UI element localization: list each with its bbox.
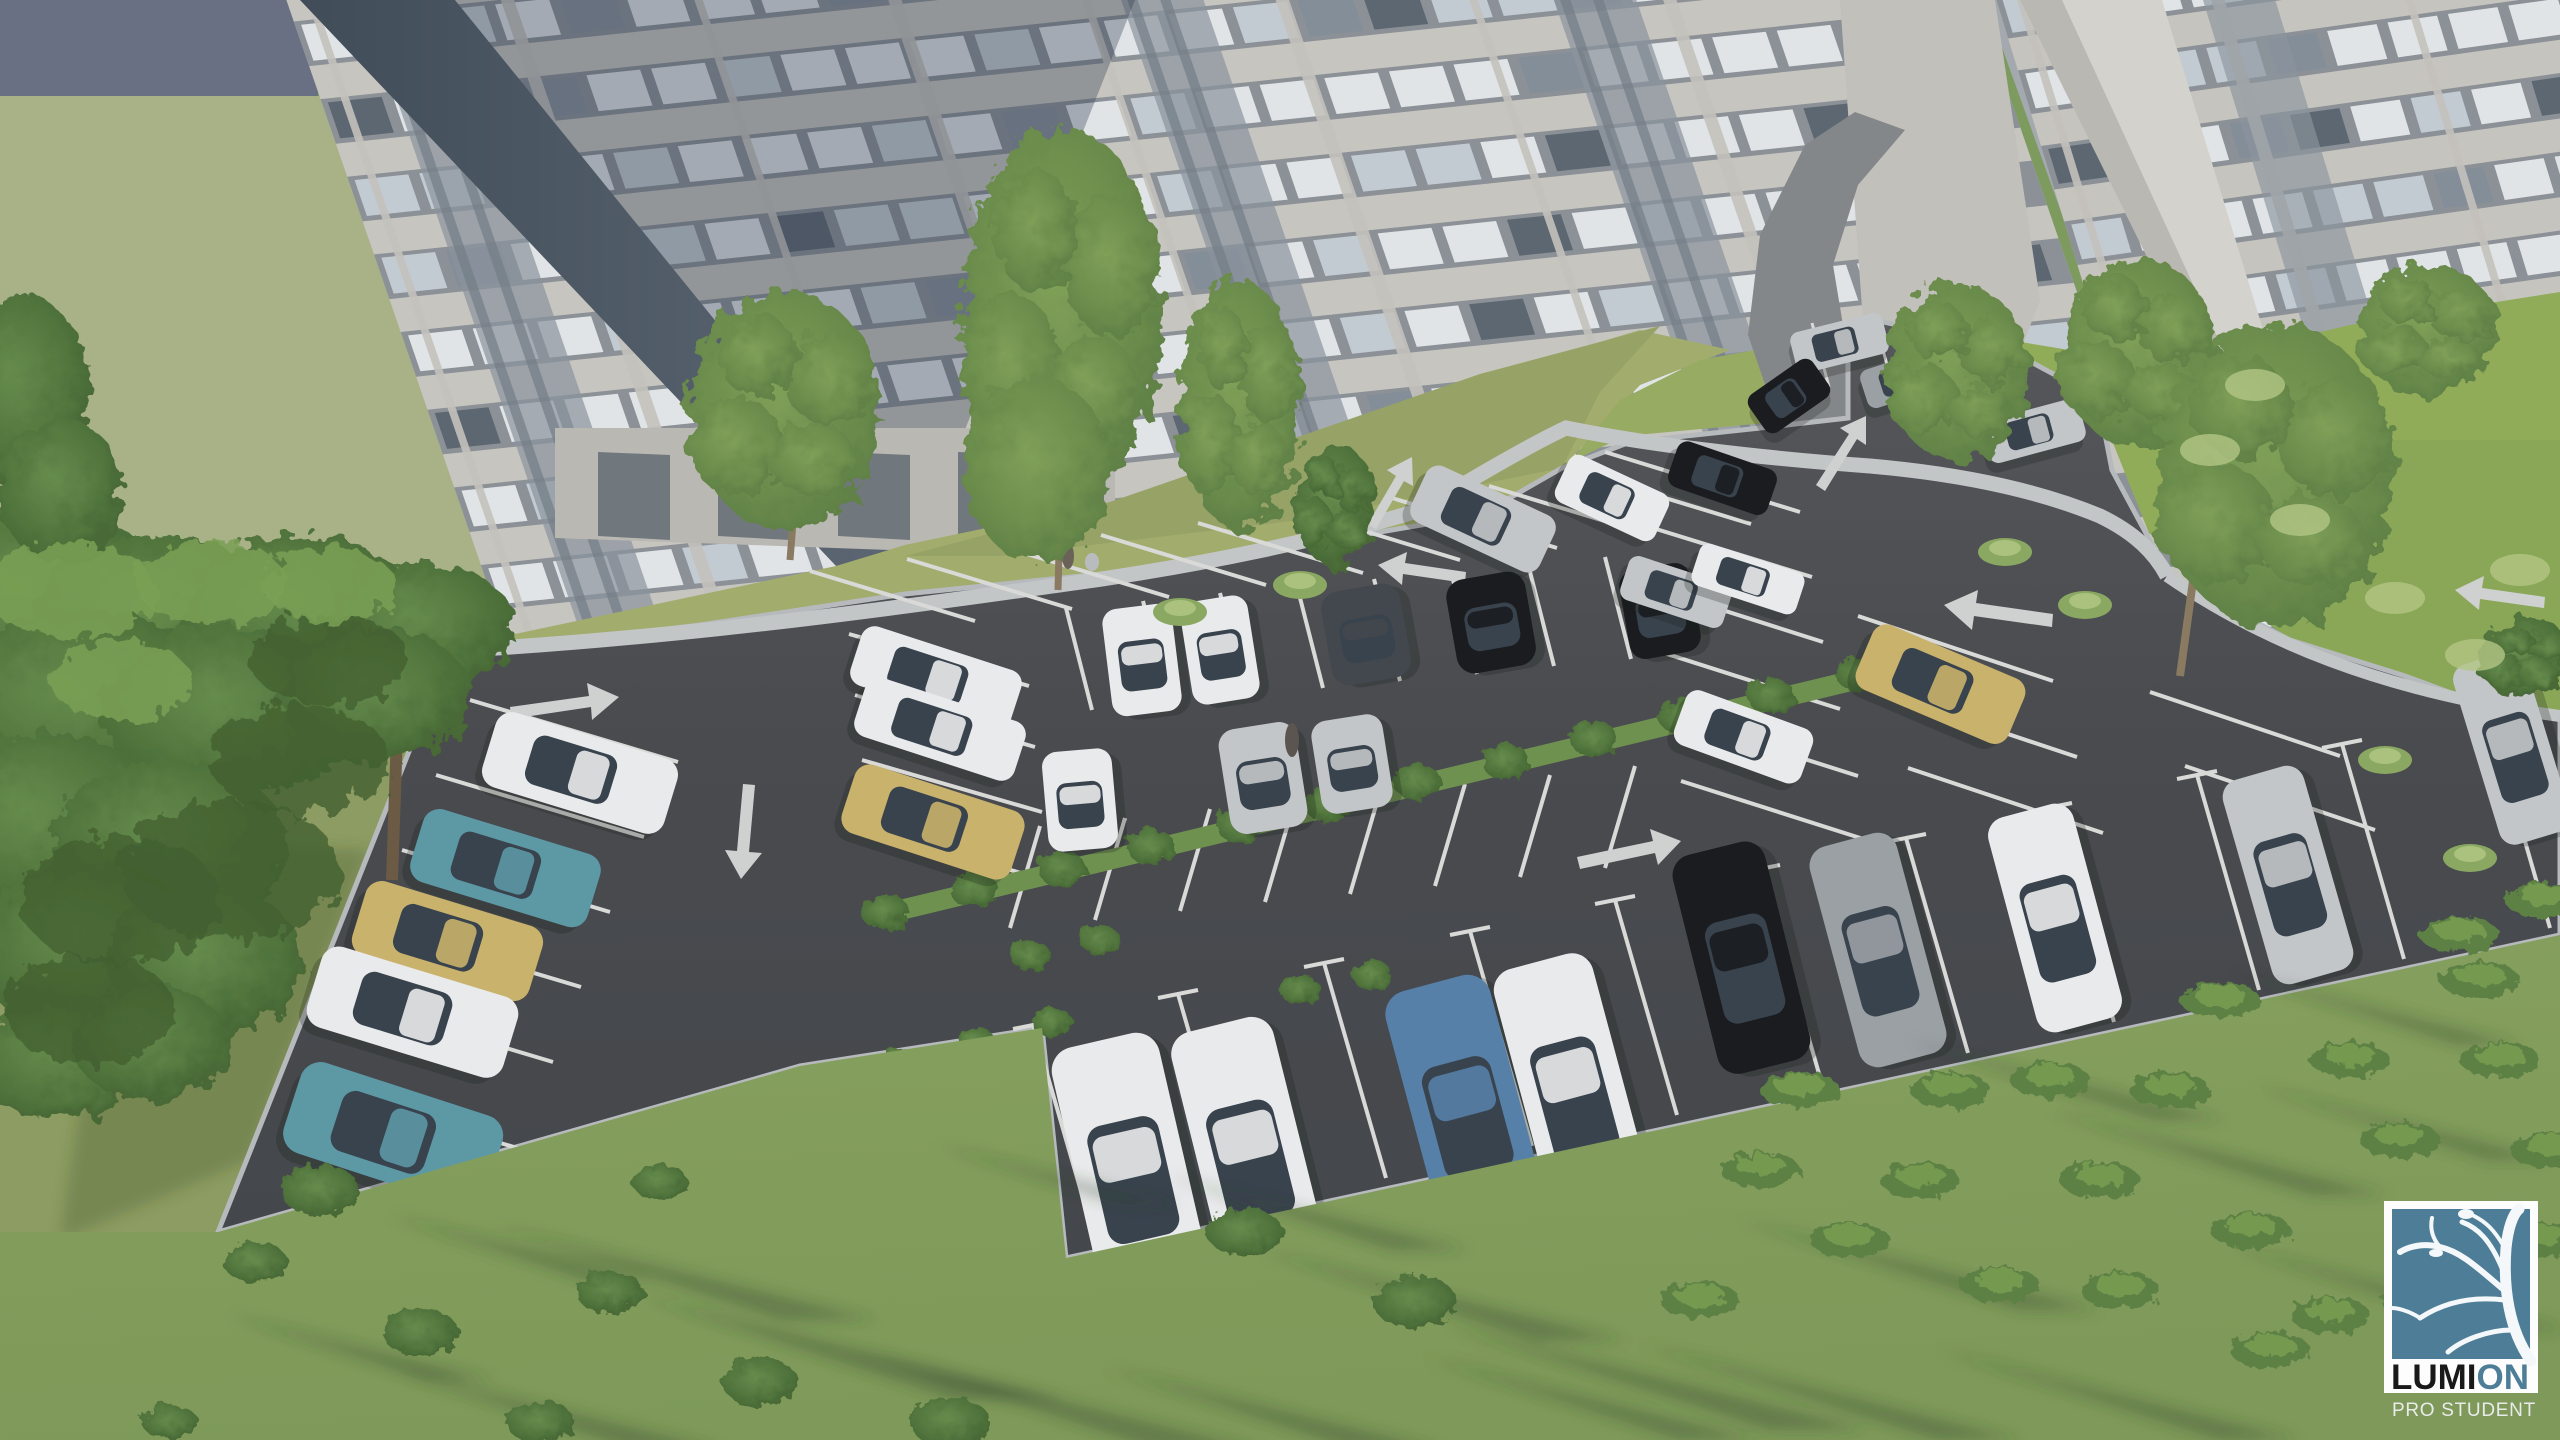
- svg-text:PRO STUDENT: PRO STUDENT: [2392, 1400, 2536, 1421]
- svg-text:LUMION: LUMION: [2391, 1358, 2529, 1397]
